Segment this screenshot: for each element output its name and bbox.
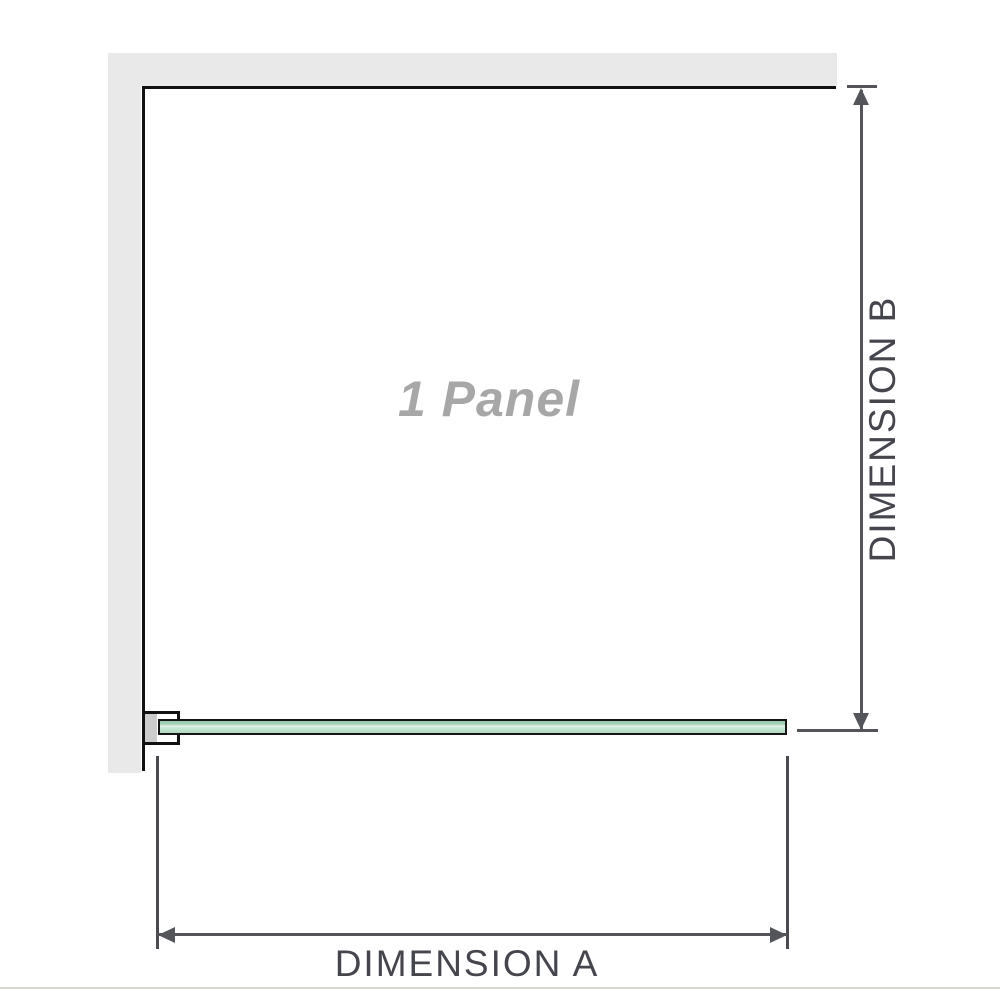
diagram-canvas: 1 Panel DIMENSION B DIMENSION A	[0, 0, 1000, 1000]
panel-outline	[142, 86, 836, 771]
dimension-a-arrowhead-left	[158, 927, 175, 943]
panel-label: 1 Panel	[398, 370, 580, 428]
dimension-b-label: DIMENSION B	[862, 296, 904, 563]
bracket-pad	[145, 714, 157, 742]
wall-top	[108, 53, 837, 86]
dimension-b-arrowhead-top	[853, 88, 869, 105]
dimension-a-line	[157, 933, 787, 936]
dimension-a-extension-left	[156, 756, 159, 949]
glass-panel	[158, 719, 787, 735]
baseline-rule	[0, 987, 1000, 989]
dimension-a-extension-right	[786, 756, 789, 949]
dimension-b-arrowhead-bottom	[853, 713, 869, 730]
dimension-a-arrowhead-right	[770, 927, 787, 943]
dimension-a-label: DIMENSION A	[335, 943, 600, 985]
wall-left	[108, 53, 141, 773]
